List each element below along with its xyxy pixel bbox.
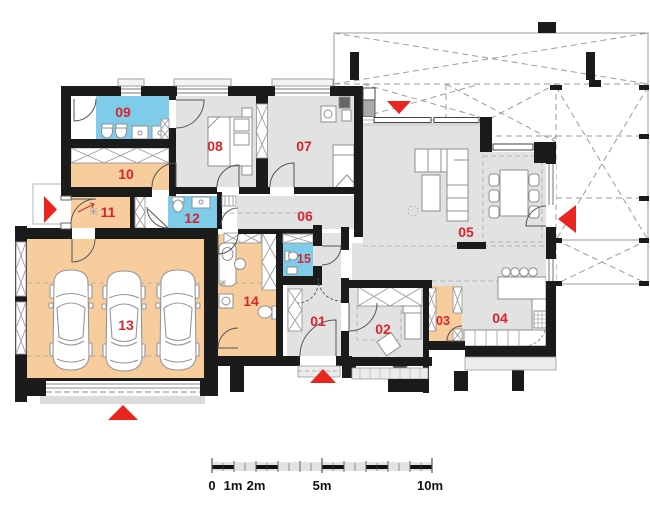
- svg-text:04: 04: [492, 310, 508, 326]
- svg-text:07: 07: [296, 138, 312, 154]
- svg-text:5m: 5m: [313, 478, 332, 493]
- svg-text:15: 15: [297, 252, 311, 266]
- svg-text:10: 10: [118, 166, 134, 182]
- svg-text:2m: 2m: [247, 478, 266, 493]
- svg-text:01: 01: [310, 313, 326, 329]
- svg-text:09: 09: [115, 104, 131, 120]
- svg-text:06: 06: [297, 208, 313, 224]
- svg-text:14: 14: [243, 293, 259, 309]
- svg-text:0: 0: [208, 478, 215, 493]
- svg-text:03: 03: [436, 314, 450, 328]
- svg-text:05: 05: [458, 224, 474, 240]
- svg-text:11: 11: [101, 204, 116, 220]
- svg-text:1m: 1m: [224, 478, 243, 493]
- svg-text:02: 02: [375, 321, 391, 337]
- svg-text:08: 08: [207, 138, 223, 154]
- svg-text:13: 13: [118, 317, 134, 333]
- svg-text:12: 12: [184, 210, 200, 226]
- svg-text:10m: 10m: [417, 478, 443, 493]
